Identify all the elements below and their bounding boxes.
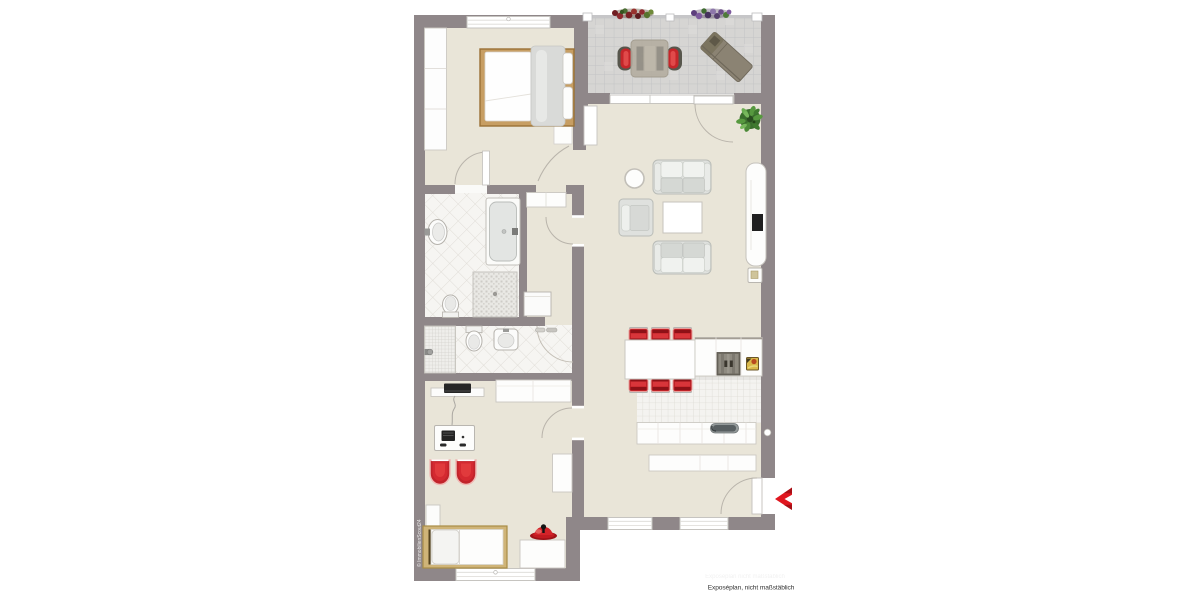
svg-text:© ImmobilienScout24: © ImmobilienScout24 [416,519,423,567]
svg-text:Exposéplan, nicht maßstäblich: Exposéplan, nicht maßstäblich [708,585,795,592]
svg-text:Exposeplan nicht maßstablich: Exposeplan nicht maßstablich [705,574,785,580]
